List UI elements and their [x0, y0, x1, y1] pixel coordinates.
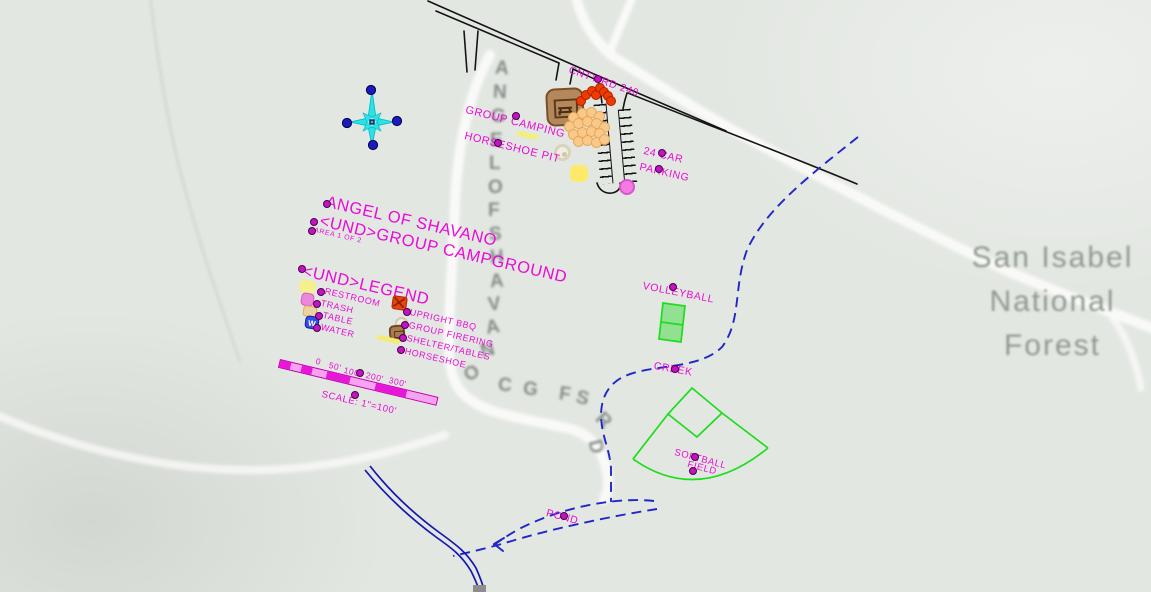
point-node-marker	[401, 321, 409, 329]
point-node-marker	[317, 288, 325, 296]
stream-line-east	[370, 466, 485, 592]
upright-bbq-dot	[606, 96, 616, 106]
softball-foul-line-right	[722, 413, 768, 448]
softball-foul-line-left	[633, 414, 668, 459]
point-node-marker	[310, 218, 318, 226]
point-node-marker	[323, 200, 331, 208]
point-node-marker	[658, 149, 666, 157]
point-node-marker	[494, 139, 502, 147]
campground-entrance-left	[464, 31, 467, 72]
point-node-marker	[315, 312, 323, 320]
point-node-marker	[397, 346, 405, 354]
point-node-marker	[669, 283, 677, 291]
point-node-marker	[512, 112, 520, 120]
point-node-marker	[560, 512, 568, 520]
table-dot	[599, 134, 610, 145]
compass-center-dot	[371, 121, 373, 123]
restroom-building-icon	[570, 165, 588, 182]
point-node-marker	[655, 165, 663, 173]
point-node-marker	[308, 227, 316, 235]
compass-rose	[340, 84, 404, 156]
point-node-marker	[403, 308, 411, 316]
point-node-marker	[351, 391, 359, 399]
point-node-marker	[689, 467, 697, 475]
point-node-marker	[671, 365, 679, 373]
stream-culvert	[473, 585, 486, 592]
campground-entrance-right	[475, 31, 478, 70]
county-road-south-casing-a	[436, 11, 559, 63]
parking-bottom-curve	[597, 183, 620, 193]
trash-site-icon	[619, 179, 635, 195]
compass-south-point	[368, 140, 377, 149]
point-node-marker	[691, 453, 699, 461]
point-node-marker	[313, 300, 321, 308]
compass-east-point	[392, 116, 401, 125]
campground-map: San Isabel National Forest ANGELOFSHAVAN…	[0, 0, 1151, 592]
compass-west-point	[342, 118, 351, 127]
creek-line	[601, 137, 858, 502]
softball-infield-diamond	[668, 388, 722, 437]
point-node-marker	[399, 334, 407, 342]
compass-north-point	[366, 85, 375, 94]
point-node-marker	[298, 265, 306, 273]
point-node-marker	[594, 75, 602, 83]
camp-area-entrance-left	[556, 63, 559, 80]
stream-line-west	[365, 470, 480, 592]
point-node-marker	[356, 369, 364, 377]
point-node-marker	[313, 324, 321, 332]
